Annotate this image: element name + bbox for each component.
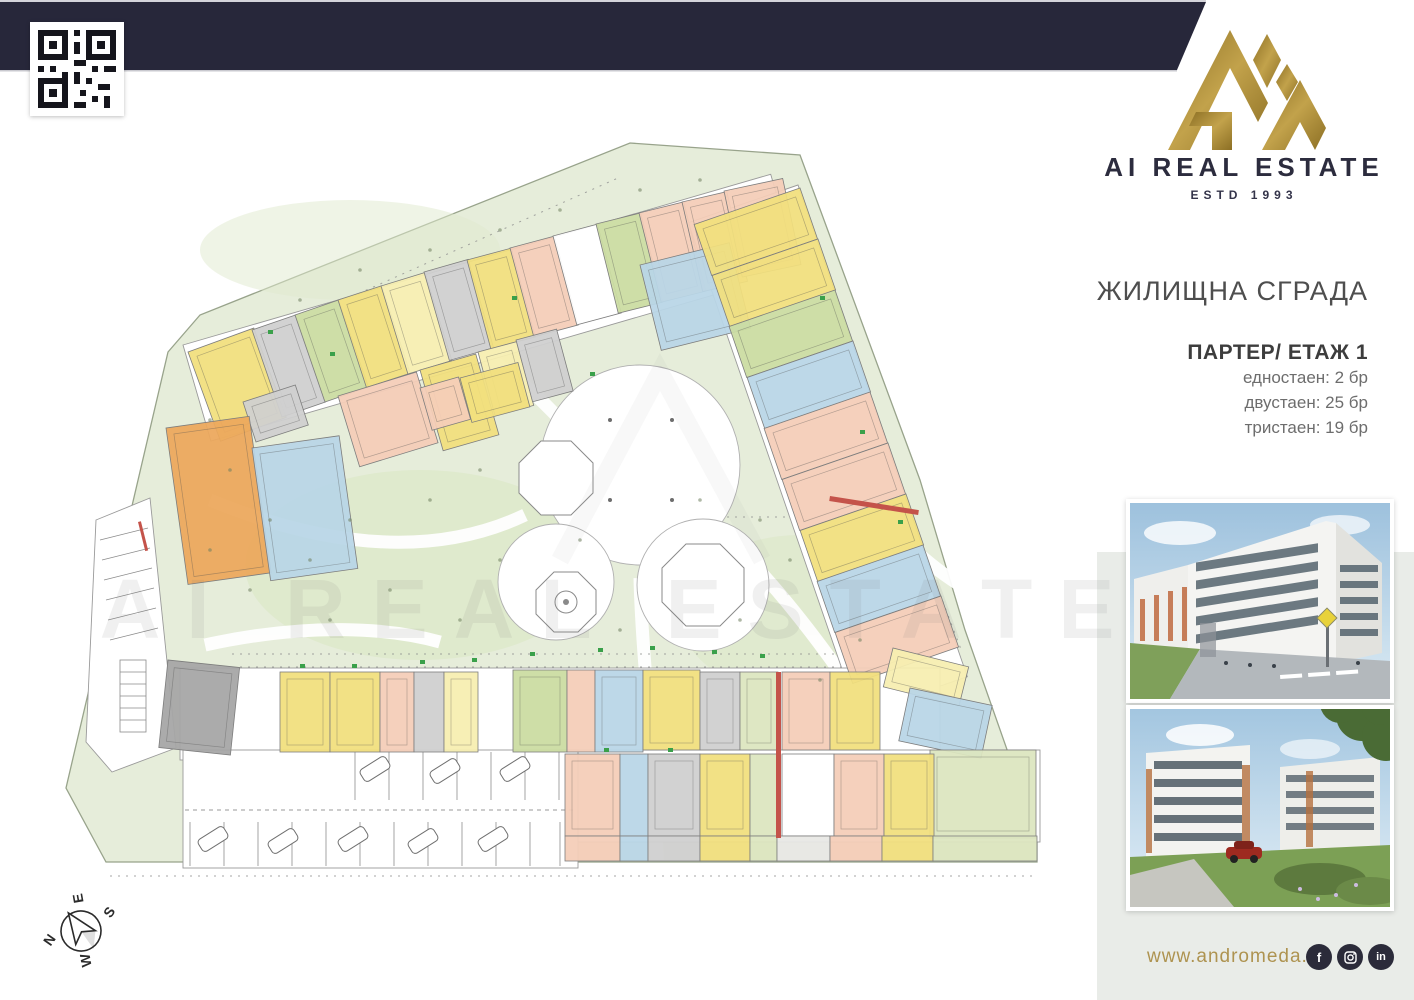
page: AI REAL ESTATE ESTD 1993 ЖИЛИЩНА СГРАДА …: [0, 0, 1414, 1000]
svg-text:AI REAL ESTATE: AI REAL ESTATE: [100, 562, 1141, 656]
floor-plan: AI REAL ESTATE: [0, 0, 1414, 1000]
